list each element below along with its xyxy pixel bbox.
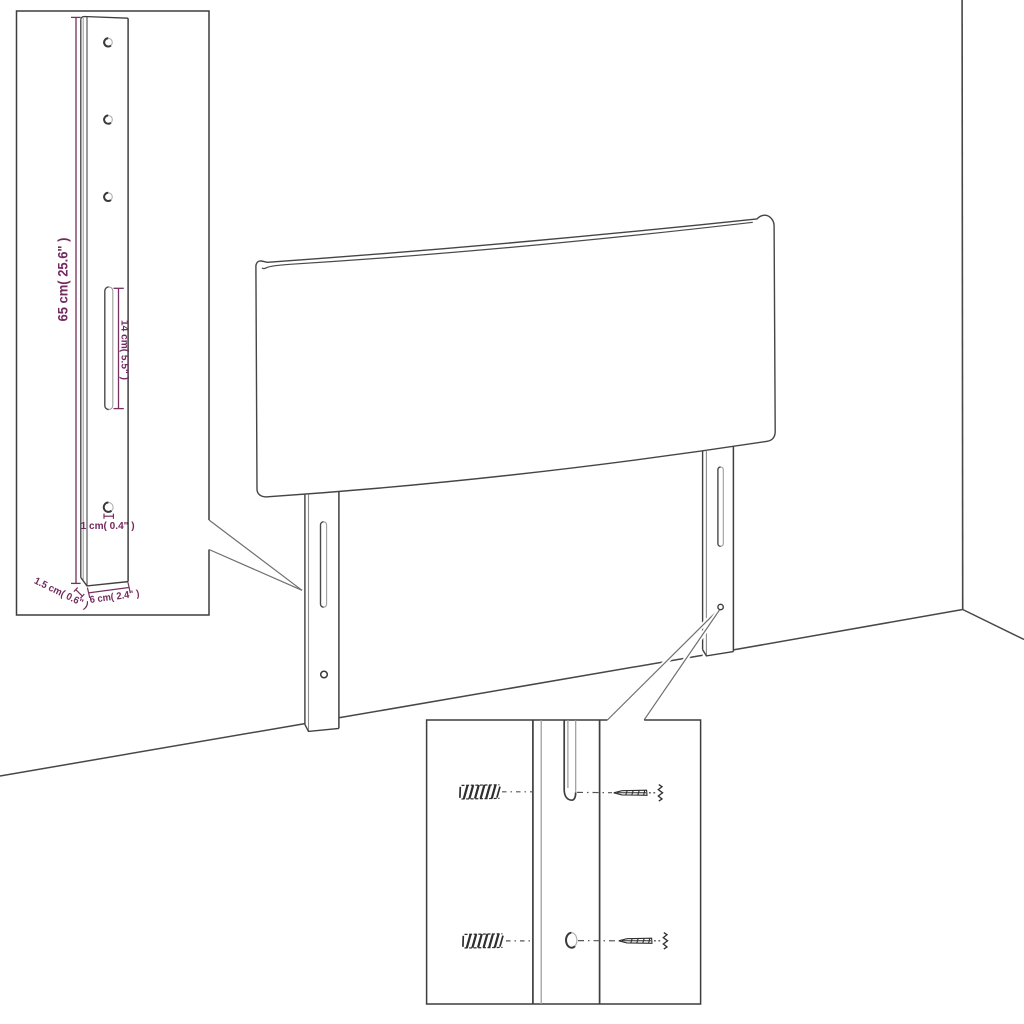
svg-text:65 cm( 25.6" ): 65 cm( 25.6" ) bbox=[55, 238, 71, 322]
svg-text:1 cm( 0.4" ): 1 cm( 0.4" ) bbox=[81, 521, 135, 532]
svg-text:14 cm( 5.5" ): 14 cm( 5.5" ) bbox=[118, 320, 129, 380]
